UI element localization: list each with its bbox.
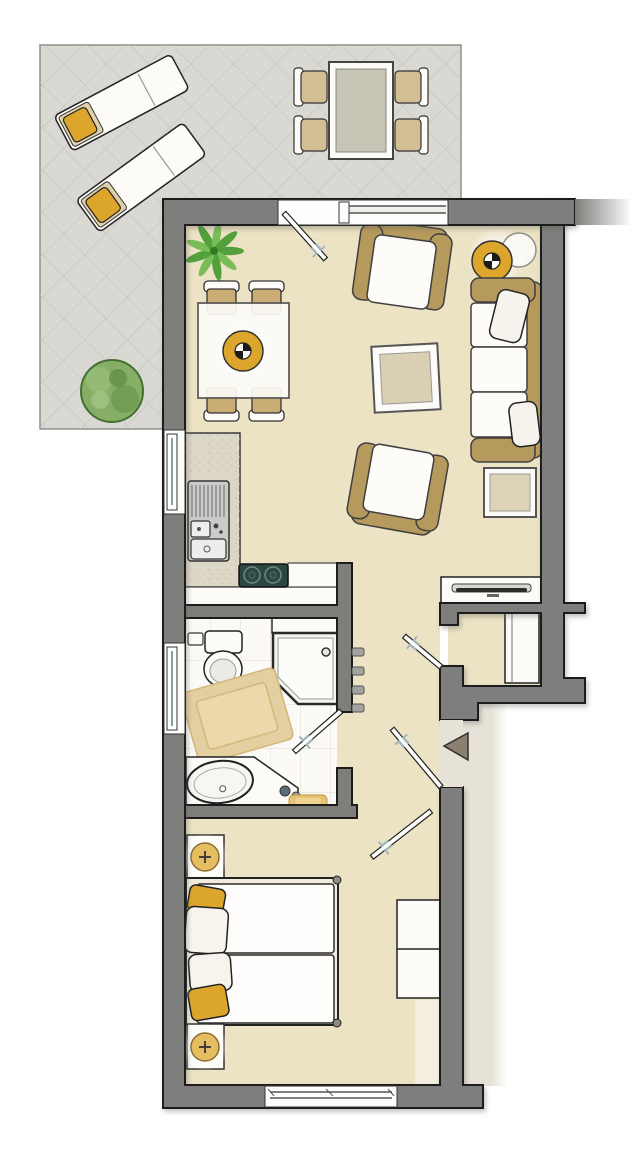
coffee-table [371,343,440,412]
nightstand [181,833,229,881]
armchair [345,441,450,538]
bedroom-window [265,1086,397,1107]
sofa [471,278,542,462]
armchair [351,218,454,312]
side-table [484,468,536,517]
terrace-dining-table [329,62,393,159]
pendant-lamp [223,331,263,371]
kitchen-cabinet [288,563,338,587]
double-bed [184,876,341,1027]
closet-cabinet [505,613,539,683]
bush-plant [81,360,143,422]
bathroom-window [164,643,185,734]
kitchen-sink [188,481,229,561]
bathroom-shelf [272,618,341,633]
kitchen-window [164,430,185,514]
wall-fade [575,199,632,225]
floorplan-root [40,45,632,1108]
terrace-chair [395,116,428,154]
floorplan-svg [0,0,640,1170]
nightstand [181,1023,229,1071]
terrace-chair [294,116,327,154]
terrace-chair [294,68,327,106]
terrace-chair [395,68,428,106]
cooktop [239,564,288,587]
floorplan [0,0,640,1170]
